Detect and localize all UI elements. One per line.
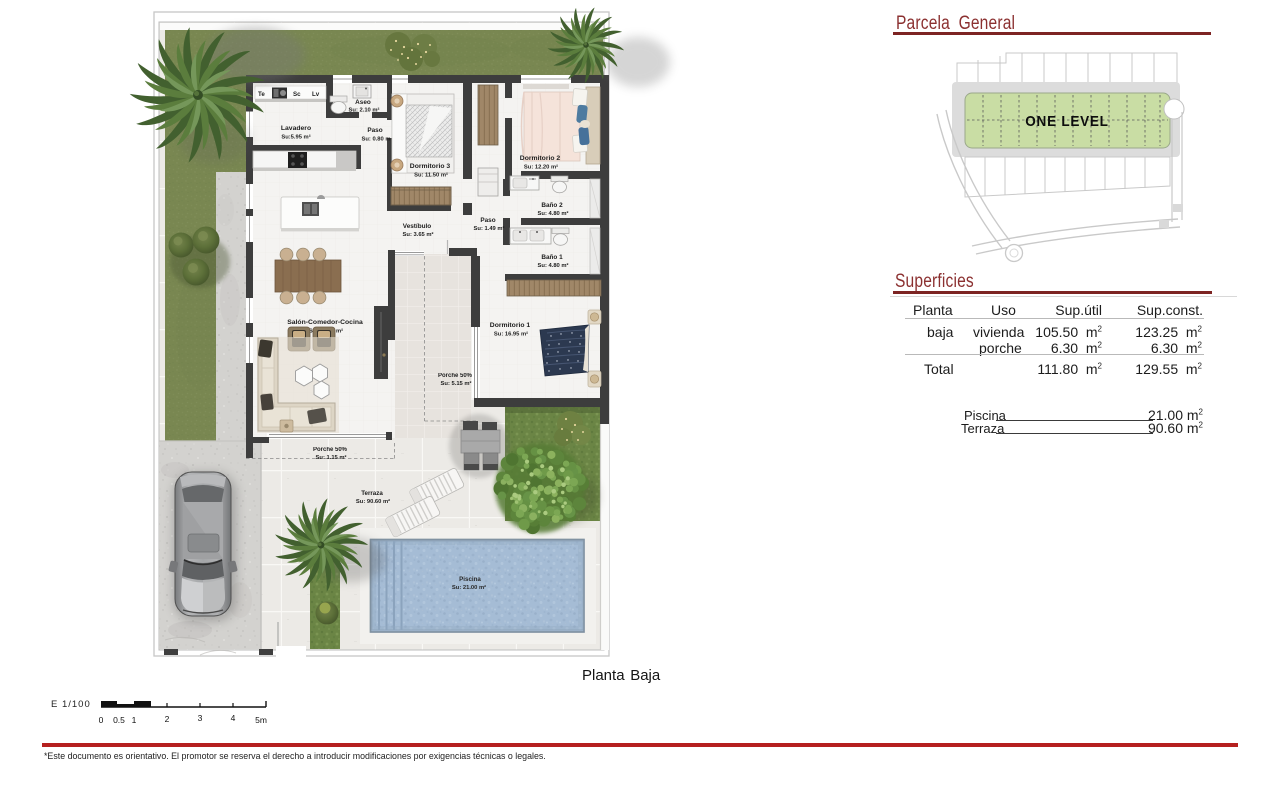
svg-text:Su: 4.80 m²: Su: 4.80 m²: [538, 210, 569, 217]
svg-text:Su: 3.65 m²: Su: 3.65 m²: [403, 231, 434, 238]
svg-text:Terraza: Terraza: [361, 490, 383, 497]
svg-text:3: 3: [198, 713, 203, 723]
svg-text:1: 1: [132, 715, 137, 725]
svg-text:Su: 1.15 m²: Su: 1.15 m²: [316, 454, 347, 461]
svg-text:Porche 50%: Porche 50%: [313, 447, 348, 453]
svg-text:ONE LEVEL: ONE LEVEL: [1025, 113, 1108, 130]
svg-text:0: 0: [99, 715, 104, 725]
svg-text:Porche 50%: Porche 50%: [438, 373, 473, 379]
svg-text:Su:5.95 m²: Su:5.95 m²: [281, 134, 310, 141]
svg-text:Su: 4.80 m²: Su: 4.80 m²: [538, 262, 569, 269]
svg-text:2: 2: [165, 714, 170, 724]
svg-text:Su: 0.80 m: Su: 0.80 m: [362, 137, 391, 143]
svg-text:Te: Te: [258, 91, 265, 98]
svg-text:Baño 1: Baño 1: [541, 254, 563, 261]
svg-text:Dormitorio 1: Dormitorio 1: [490, 322, 531, 329]
svg-text:0.5: 0.5: [113, 715, 125, 725]
svg-text:4: 4: [231, 713, 236, 723]
svg-text:Su: 2.10 m²: Su: 2.10 m²: [349, 107, 380, 114]
svg-text:Su: 16.95 m²: Su: 16.95 m²: [494, 331, 528, 338]
svg-text:Salón-Comedor-Cocina: Salón-Comedor-Cocina: [287, 319, 363, 326]
svg-text:Baño 2: Baño 2: [541, 202, 563, 209]
svg-text:5m: 5m: [255, 715, 267, 725]
svg-text:Sc: Sc: [293, 91, 301, 98]
svg-text:Dormitorio 2: Dormitorio 2: [520, 155, 561, 162]
svg-text:Aseo: Aseo: [355, 99, 371, 106]
svg-text:Su: 12.20 m²: Su: 12.20 m²: [524, 164, 558, 171]
svg-text:Paso: Paso: [367, 127, 382, 134]
svg-text:Piscina: Piscina: [459, 576, 481, 583]
svg-text:Dormitorio 3: Dormitorio 3: [410, 163, 451, 170]
svg-text:Vestíbulo: Vestíbulo: [403, 223, 432, 230]
svg-text:Su: 11.50 m²: Su: 11.50 m²: [414, 172, 448, 179]
svg-text:Lavadero: Lavadero: [281, 125, 311, 132]
svg-text:Paso: Paso: [480, 217, 495, 224]
svg-text:Lv: Lv: [312, 91, 320, 98]
svg-text:Su: 90.60 m²: Su: 90.60 m²: [356, 498, 390, 505]
svg-text:Su: 5.15 m²: Su: 5.15 m²: [441, 380, 472, 387]
svg-text:Su: 1.49 m²: Su: 1.49 m²: [474, 225, 505, 232]
svg-text:Su: 21.00 m²: Su: 21.00 m²: [452, 584, 486, 591]
